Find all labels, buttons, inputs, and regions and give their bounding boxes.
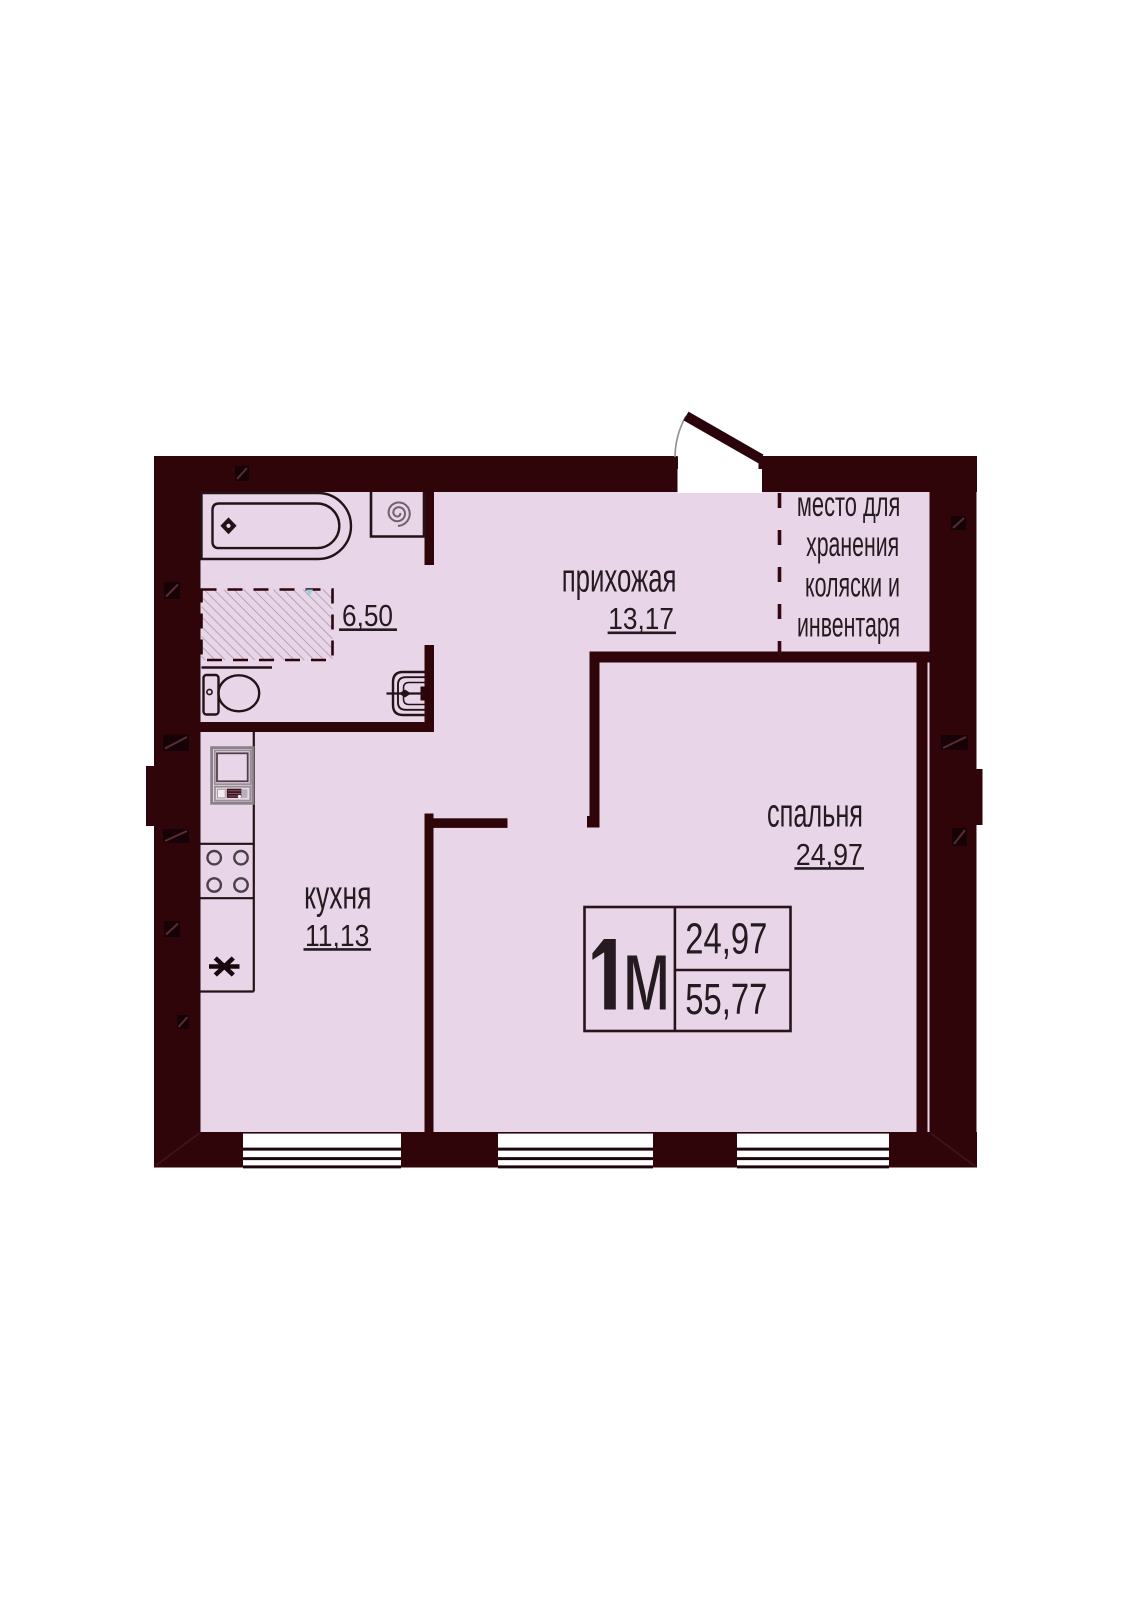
svg-text:коляски и: коляски и: [805, 565, 900, 604]
svg-text:прихожая: прихожая: [562, 556, 677, 600]
svg-text:24,97: 24,97: [796, 837, 863, 872]
svg-text:6,50: 6,50: [342, 598, 393, 633]
svg-text:55,77: 55,77: [685, 975, 767, 1024]
svg-text:инвентаря: инвентаря: [797, 606, 900, 645]
svg-text:м: м: [623, 918, 671, 1032]
svg-text:кухня: кухня: [304, 873, 371, 917]
svg-text:спальня: спальня: [767, 792, 863, 836]
svg-text:хранения: хранения: [806, 525, 899, 564]
svg-text:13,17: 13,17: [608, 601, 674, 636]
svg-text:11,13: 11,13: [305, 918, 369, 953]
svg-text:24,97: 24,97: [685, 915, 767, 964]
svg-text:место для: место для: [797, 485, 900, 524]
